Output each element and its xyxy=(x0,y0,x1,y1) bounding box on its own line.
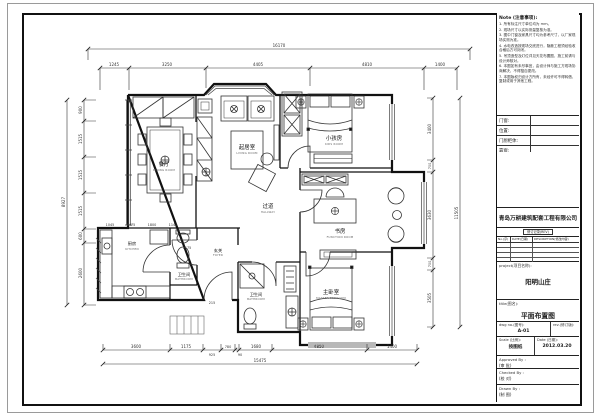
revision-col: No.(序) xyxy=(497,237,511,242)
room-labels: 餐厅 DINING ROOM 起居室 LIVING ROOM 小孩房 KIDS … xyxy=(125,134,354,301)
dim-bottom-3: 780 xyxy=(225,345,231,349)
drawn-by-box: Drawn By : (制 图) xyxy=(497,385,579,402)
revision-strip: 修订记录(REV) xyxy=(497,228,579,237)
room-label-study: 书房 xyxy=(335,227,346,235)
dim-left-5: 2600 xyxy=(78,267,83,278)
room-label-living: 起居室 xyxy=(239,143,256,151)
company-name: 青岛万耕建筑配套工程有限公司 xyxy=(497,208,579,228)
dim-right-3: 700 xyxy=(428,261,432,267)
dwgno-cell: dwg no.(图号): A-01 xyxy=(497,322,551,336)
room-label-foyer-en: FOYER xyxy=(213,253,223,257)
dim-left-2: 1515 xyxy=(78,169,83,180)
dim-bottom-4: 90 xyxy=(238,353,242,357)
dim-top-3: 4810 xyxy=(362,62,373,67)
title-block: Note (注意事项): 1. 所有标注尺寸单位均为 mm。 2. 现场尺寸以实… xyxy=(496,13,579,402)
dim-bottom-7: 1400 xyxy=(387,344,398,349)
notes-section: Note (注意事项): 1. 所有标注尺寸单位均为 mm。 2. 现场尺寸以实… xyxy=(497,13,579,116)
spec-field-row: 门窗: xyxy=(497,116,579,126)
drawn-value: (制 图) xyxy=(499,392,577,398)
room-label-study-en: FUNCTION ROOM xyxy=(327,235,354,239)
dim-left-4: 600 xyxy=(78,232,83,240)
scale-label: Scale (比例): xyxy=(499,338,532,343)
room-label-dining-en: DINING ROOM xyxy=(153,168,175,172)
dim-top-1: 3250 xyxy=(162,62,173,67)
sheet: 餐厅 DINING ROOM 起居室 LIVING ROOM 小孩房 KIDS … xyxy=(0,0,600,415)
room-label-kids: 小孩房 xyxy=(326,134,342,142)
room-label-living-en: LIVING ROOM xyxy=(236,151,258,155)
dwgno-label: dwg no.(图号): xyxy=(499,323,548,328)
dim-bottom-5: 1680 xyxy=(251,344,262,349)
checked-label: Checked By : xyxy=(499,370,577,375)
dwgno-rev-row: dwg no.(图号): A-01 rev.(修订版): xyxy=(497,322,579,337)
rev-cell: rev.(修订版): xyxy=(551,322,579,336)
revision-col: DESCRIPTION(修改内容) xyxy=(533,237,579,242)
revision-col: DATE(日期) xyxy=(511,237,533,242)
room-label-bath-big-en: BATHROOM xyxy=(247,297,265,301)
dim-inner-5: 215 xyxy=(209,301,215,305)
dwgno-value: A-01 xyxy=(499,329,548,334)
spec-field-label: 门厨柜体: xyxy=(497,136,531,145)
dim-inner-1: 1475 xyxy=(127,223,136,227)
drawing-title-box: title(图名): 平面布置图 xyxy=(497,300,579,322)
spec-field-row: 门厨柜体: xyxy=(497,136,579,146)
windows xyxy=(96,86,427,348)
dim-right-2: 3630 xyxy=(427,209,432,220)
room-label-kids-en: KIDS ROOM xyxy=(325,142,343,146)
dim-top-total: 16170 xyxy=(273,43,286,48)
logo-box xyxy=(497,152,579,208)
note-item: 7. 本图版权归设计方所有，未经许可不得转借、复制或用于其他工程。 xyxy=(499,75,577,84)
drawn-label: Drawn By : xyxy=(499,386,577,391)
spec-field-row: 位置: xyxy=(497,126,579,136)
room-label-kitchen-en: KITCHEN xyxy=(125,247,139,251)
dim-bottom-1: 1175 xyxy=(181,344,192,349)
room-label-kitchen: 厨房 xyxy=(128,240,136,247)
dim-top-2: 4405 xyxy=(253,62,264,67)
room-label-master-en: MASTER BEDROOM xyxy=(316,296,346,300)
project-label: project(项目名称): xyxy=(499,263,577,269)
date-value: 2012.03.20 xyxy=(537,344,577,349)
dim-left-total: 8927 xyxy=(61,196,66,207)
scale-date-row: Scale (比例): 按图纸 Date (日期): 2012.03.20 xyxy=(497,337,579,356)
room-label-master: 主卧室 xyxy=(323,288,340,296)
dim-right-0: 3400 xyxy=(427,123,432,134)
note-item: 1. 所有标注尺寸单位均为 mm。 xyxy=(499,22,577,27)
dim-right-1: 700 xyxy=(428,163,432,169)
date-label: Date (日期): xyxy=(537,338,577,343)
dim-top-4: 1400 xyxy=(435,62,446,67)
dim-bottom-0: 3600 xyxy=(131,344,142,349)
drawing-title-value: 平面布置图 xyxy=(499,310,577,320)
drawing-title-label: title(图名): xyxy=(499,301,577,307)
scale-value: 按图纸 xyxy=(499,344,532,350)
spec-field-label: 门窗: xyxy=(497,116,531,125)
scale-cell: Scale (比例): 按图纸 xyxy=(497,337,535,355)
notes-heading: Note (注意事项): xyxy=(499,15,577,21)
approved-by-box: Approved By : (审 批) xyxy=(497,356,579,369)
date-cell: Date (日期): 2012.03.20 xyxy=(535,337,579,355)
dim-bottom-2: 925 xyxy=(209,353,215,357)
spec-fields-table: 门窗: 位置: 门厨柜体: 靠窗: xyxy=(497,116,579,152)
dim-inner-0: 1045 xyxy=(106,223,115,227)
dim-right-total: 11505 xyxy=(454,206,459,219)
exterior-walls xyxy=(98,84,424,345)
dim-right-4: 3505 xyxy=(427,292,432,303)
project-box: project(项目名称): 阳明山庄 xyxy=(497,262,579,300)
room-label-bath-small-en: BATHROOM xyxy=(175,277,193,281)
room-label-hallway: 过道 xyxy=(263,202,274,210)
dim-inner-3: 1140 xyxy=(169,223,178,227)
approved-label: Approved By : xyxy=(499,357,577,362)
dim-inner-4: 1175 xyxy=(183,246,192,250)
dim-bottom-total: 15475 xyxy=(254,358,267,363)
dim-left-0: 900 xyxy=(78,106,83,114)
note-item: 2. 现场尺寸以实际测量复核为准。 xyxy=(499,28,577,33)
revision-table: No.(序) DATE(日期) DESCRIPTION(修改内容) xyxy=(497,237,579,262)
spec-field-label: 位置: xyxy=(497,126,531,135)
dim-bottom-6: 4850 xyxy=(314,344,325,349)
revision-strip-label: 修订记录(REV) xyxy=(523,229,553,235)
room-label-dining: 餐厅 xyxy=(159,160,170,168)
note-item: 5. 吊顶造型及灯位详见天花布置图，施工前请与设计师核对。 xyxy=(499,54,577,63)
dim-top-0: 1245 xyxy=(109,62,120,67)
room-label-hallway-en: HALLWAY xyxy=(261,210,275,214)
dim-left-1: 1515 xyxy=(78,133,83,144)
note-item: 3. 图中门窗及家具尺寸均为参考尺寸，以厂家现场实测为准。 xyxy=(499,33,577,42)
rev-label: rev.(修订版): xyxy=(553,323,577,328)
note-item: 6. 本图如有未尽事宜，由设计师与施工方现场协商解决，不得擅自更改。 xyxy=(499,64,577,73)
project-value: 阳明山庄 xyxy=(499,277,577,286)
checked-by-box: Checked By : (校 对) xyxy=(497,369,579,385)
dim-left-3: 1515 xyxy=(78,205,83,216)
note-item: 4. 水电改造按现场交底进行，隐蔽工程须经验收合格后方可封闭。 xyxy=(499,44,577,53)
checked-value: (校 对) xyxy=(499,376,577,382)
dim-inner-2: 1800 xyxy=(148,223,157,227)
